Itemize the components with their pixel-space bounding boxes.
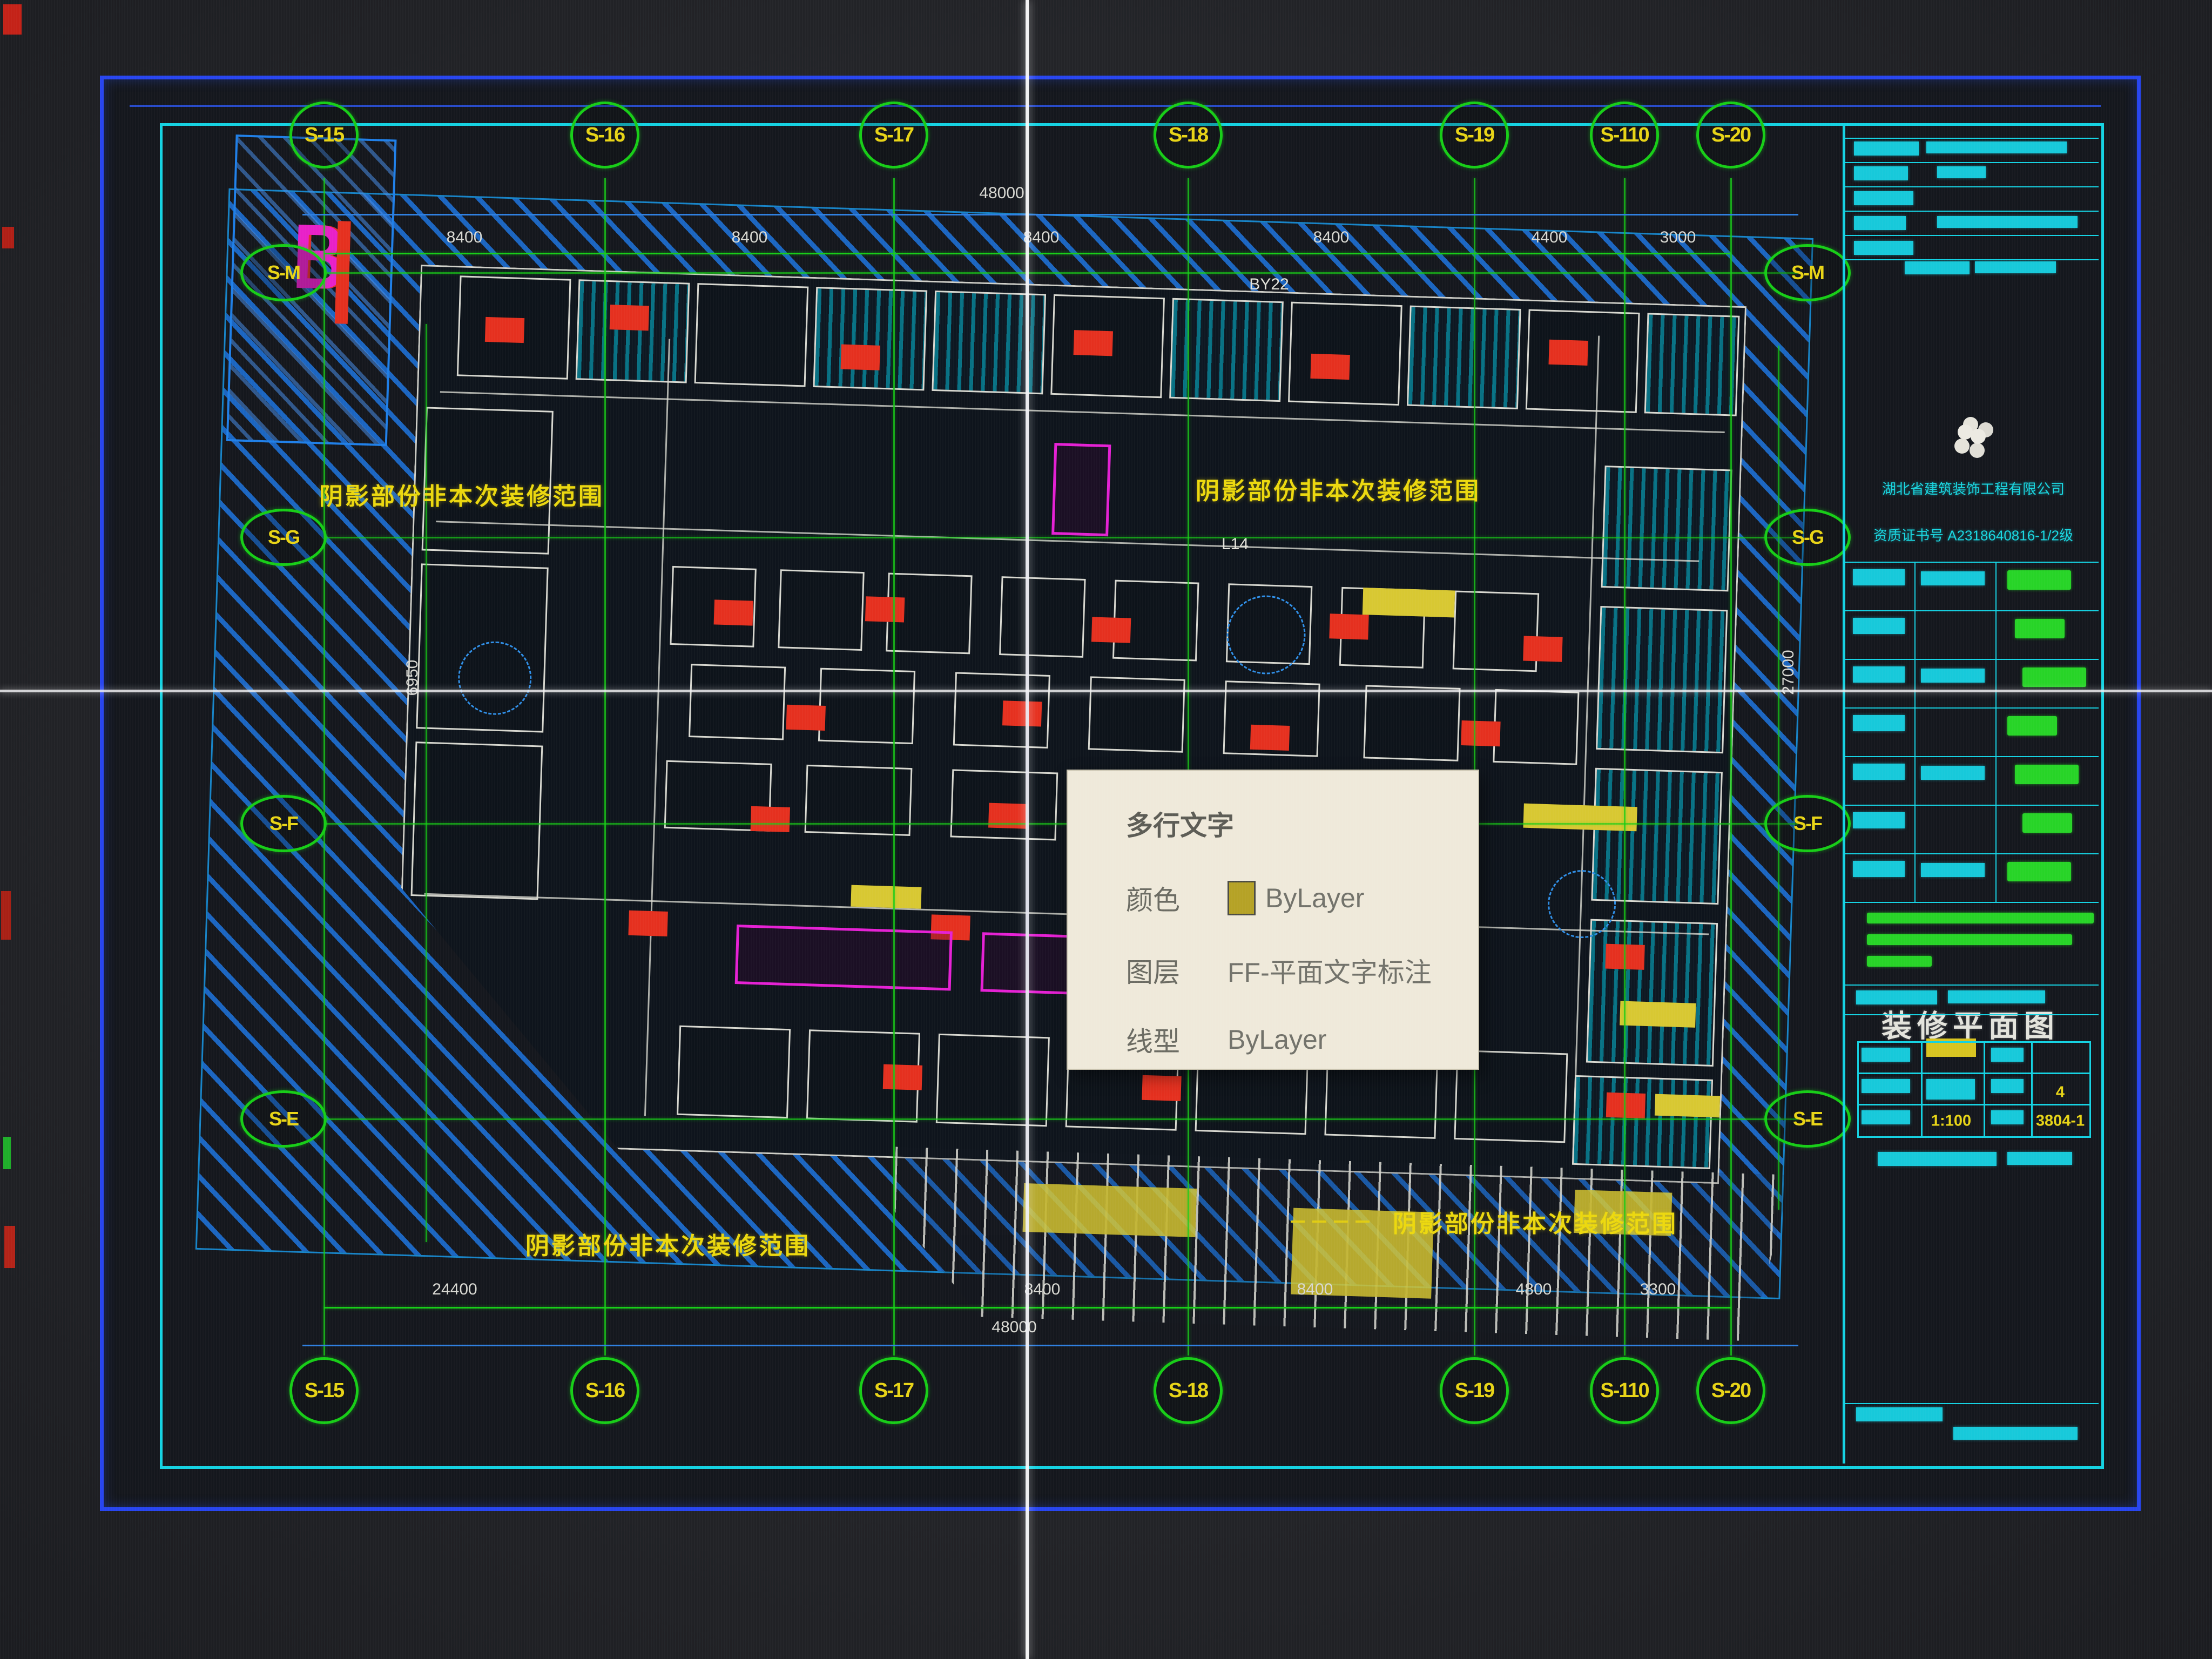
- axis-bubble-top[interactable]: S-15: [289, 102, 359, 168]
- green-note-line: [1867, 913, 2094, 923]
- title-block-rule: [1845, 162, 2099, 163]
- tooltip-linetype-value: ByLayer: [1228, 1024, 1326, 1055]
- tooltip-entity-type: 多行文字: [1126, 804, 1234, 843]
- edge-artifact: [3, 4, 22, 35]
- dim-text-bottom-segment: 24400: [432, 1280, 477, 1299]
- mini-grid-rule: [1857, 1041, 1859, 1138]
- dim-text-top-segment: 8400: [447, 228, 483, 247]
- axis-bubble-bottom[interactable]: S-20: [1696, 1357, 1765, 1424]
- dim-text-bottom-total: 48000: [992, 1318, 1036, 1337]
- revision-row-text: [1854, 241, 1913, 255]
- company-name: 湖北省建筑装饰工程有限公司: [1882, 478, 2065, 498]
- videowall-seam-vertical: [1026, 0, 1029, 1659]
- revision-row-text: [1937, 166, 1986, 178]
- table-label: [1853, 764, 1905, 780]
- title-block-text: [1878, 1152, 1997, 1166]
- dim-line-left-vertical: [426, 324, 427, 1242]
- color-swatch-icon: [1228, 881, 1256, 915]
- signature-name: [2007, 716, 2057, 736]
- axis-line-vertical: [323, 178, 325, 1355]
- title-block-text: [2007, 1152, 2072, 1165]
- table-label: [1921, 571, 1985, 585]
- shade-note-top-left: 阴影部份非本次装修范围: [319, 477, 604, 511]
- axis-line-vertical: [893, 178, 895, 1355]
- axis-line-vertical: [1474, 178, 1475, 1355]
- mini-grid-label: [1862, 1079, 1910, 1093]
- title-block-rule: [1845, 186, 2099, 187]
- tooltip-layer-label: 图层: [1126, 951, 1228, 990]
- axis-bubble-left[interactable]: S-G: [240, 509, 327, 566]
- shade-note-bottom-right: 阴影部份非本次装修范围: [1393, 1204, 1678, 1239]
- table-label: [1853, 861, 1905, 877]
- dim-text-top-total: 48000: [979, 184, 1024, 203]
- table-label: [1853, 715, 1905, 731]
- tooltip-layer-value: FF-平面文字标注: [1228, 951, 1432, 990]
- signature-name: [2007, 570, 2071, 590]
- dim-text-bottom-segment: 3300: [1640, 1280, 1676, 1299]
- title-block-rule: [1845, 902, 2099, 903]
- axis-bubble-right[interactable]: S-E: [1764, 1090, 1851, 1148]
- revision-row-text: [1937, 216, 2078, 228]
- edge-artifact: [3, 1137, 11, 1169]
- dim-text-top-segment: 8400: [732, 228, 768, 247]
- mini-grid-rule: [1857, 1104, 2089, 1105]
- axis-bubble-top[interactable]: S-20: [1696, 102, 1765, 168]
- cad-viewport[interactable]: B S-15S-15S-16S-16S-17S-17S-18S-18S-19S-…: [0, 0, 2212, 1659]
- edge-artifact: [2, 227, 14, 248]
- title-block-rule: [1845, 562, 2099, 563]
- axis-bubble-bottom[interactable]: S-15: [289, 1357, 359, 1424]
- title-block-text: [1856, 1407, 1943, 1421]
- dim-text-bottom-segment: 8400: [1297, 1280, 1333, 1299]
- title-block-rule: [1845, 235, 2099, 236]
- mini-grid-label: [1926, 1079, 1975, 1100]
- axis-bubble-top[interactable]: S-19: [1440, 102, 1509, 168]
- axis-bubble-right[interactable]: S-F: [1764, 795, 1851, 852]
- title-block-rule: [1845, 853, 2099, 854]
- axis-bubble-bottom[interactable]: S-16: [570, 1357, 639, 1424]
- axis-bubble-top[interactable]: S-18: [1154, 102, 1223, 168]
- mini-grid-label: [1862, 1110, 1910, 1124]
- axis-bubble-bottom[interactable]: S-19: [1440, 1357, 1509, 1424]
- title-block-rule: [1845, 1403, 2099, 1404]
- title-block-rule: [1845, 805, 2099, 806]
- videowall-seam-horizontal: [0, 690, 2212, 692]
- axis-line-horizontal: [324, 537, 1798, 538]
- sheet-number: 4: [2056, 1084, 2065, 1102]
- axis-line-vertical: [1624, 178, 1626, 1355]
- title-block-rule: [1845, 1014, 2099, 1015]
- axis-bubble-top[interactable]: S-110: [1590, 102, 1659, 168]
- room-label-l14: L14: [1222, 535, 1249, 554]
- mini-grid-label: [1991, 1048, 2024, 1062]
- revision-row-text: [1854, 141, 1919, 156]
- revision-row-text: [1975, 261, 2056, 273]
- mini-grid-label: [1991, 1110, 2024, 1124]
- dim-text-bottom-segment: 4800: [1516, 1280, 1552, 1299]
- mini-grid-rule: [1984, 1041, 1985, 1138]
- axis-bubble-right[interactable]: S-M: [1764, 244, 1851, 301]
- mini-grid-label: [1991, 1079, 2024, 1093]
- revision-row-text: [1854, 216, 1906, 230]
- title-block: 湖北省建筑装饰工程有限公司 资质证书号 A2318640816-1/2级 装修平…: [1843, 123, 2101, 1464]
- mini-grid-label: [1862, 1048, 1910, 1062]
- axis-bubble-top[interactable]: S-16: [570, 102, 639, 168]
- mini-grid-rule: [1857, 1136, 2089, 1138]
- dim-text-top-segment: 3000: [1660, 228, 1696, 247]
- object-properties-tooltip: 多行文字 颜色 ByLayer 图层 FF-平面文字标注 线型 ByLayer: [1067, 770, 1479, 1070]
- table-label: [1853, 618, 1905, 634]
- axis-bubble-bottom[interactable]: S-17: [859, 1357, 928, 1424]
- title-block-rule: [1845, 659, 2099, 660]
- mini-grid-rule: [1857, 1041, 2089, 1043]
- tooltip-color-value: ByLayer: [1265, 882, 1364, 914]
- axis-bubble-left[interactable]: S-M: [240, 244, 327, 301]
- dim-line-bottom-total: [302, 1345, 1798, 1346]
- title-block-rule: [1995, 562, 1997, 903]
- green-note-line: [1867, 934, 2072, 945]
- title-block-text: [1856, 990, 1937, 1004]
- mini-grid-rule: [2031, 1041, 2033, 1138]
- revision-row-text: [1905, 261, 1970, 274]
- axis-bubble-bottom[interactable]: S-110: [1590, 1357, 1659, 1424]
- company-logo-icon: [1958, 424, 1973, 440]
- axis-line-vertical: [1730, 178, 1732, 1355]
- revision-row-text: [1854, 191, 1913, 205]
- title-block-text: [1953, 1427, 2078, 1440]
- axis-line-vertical: [604, 178, 606, 1355]
- mini-grid-rule: [1857, 1073, 2089, 1074]
- dim-text-top-segment: 8400: [1313, 228, 1350, 247]
- table-label: [1853, 569, 1905, 585]
- table-label: [1921, 669, 1985, 683]
- axis-bubble-top[interactable]: S-17: [859, 102, 928, 168]
- dim-text-right-height: 27000: [1779, 650, 1798, 694]
- revision-row-text: [1926, 141, 2067, 153]
- dim-text-top-segment: 4400: [1532, 228, 1568, 247]
- dim-line-right-vertical: [1778, 346, 1779, 1210]
- axis-line-vertical: [1188, 178, 1189, 1355]
- signature-name: [2007, 862, 2071, 881]
- title-block-rule: [1845, 259, 2099, 260]
- table-label: [1921, 863, 1985, 877]
- mini-grid-rule: [1921, 1041, 1923, 1138]
- table-label: [1853, 812, 1905, 828]
- title-block-rule: [1845, 138, 2099, 139]
- table-label: [1921, 766, 1985, 780]
- title-block-rule: [1845, 211, 2099, 212]
- signature-name: [2022, 813, 2072, 833]
- axis-bubble-left[interactable]: S-F: [240, 795, 327, 852]
- edge-artifact: [1, 891, 11, 940]
- company-certificate: 资质证书号 A2318640816-1/2级: [1873, 525, 2073, 545]
- revision-row-text: [1854, 166, 1908, 180]
- drawing-scale: 1:100: [1931, 1112, 1971, 1130]
- drawing-number: 3804-1: [2036, 1112, 2085, 1130]
- shade-note-top-right: 阴影部份非本次装修范围: [1196, 471, 1481, 506]
- axis-bubble-right[interactable]: S-G: [1764, 509, 1851, 566]
- edge-artifact: [4, 1226, 15, 1268]
- mini-grid-rule: [2089, 1041, 2091, 1138]
- tooltip-color-label: 颜色: [1126, 879, 1228, 918]
- dim-line-top-total: [302, 214, 1798, 215]
- table-label: [1853, 666, 1905, 683]
- axis-line-horizontal: [324, 1118, 1798, 1120]
- signature-name: [2022, 667, 2086, 687]
- signature-name: [2015, 765, 2079, 784]
- signature-name: [2015, 619, 2065, 638]
- title-block-rule: [1845, 610, 2099, 611]
- room-label-by22: BY22: [1249, 275, 1289, 294]
- shade-note-bottom-left: 阴影部份非本次装修范围: [525, 1226, 811, 1261]
- title-block-rule: [1845, 707, 2099, 709]
- tooltip-linetype-label: 线型: [1126, 1020, 1228, 1059]
- green-note-line: [1867, 956, 1932, 967]
- dim-text-bottom-segment: 8400: [1024, 1280, 1061, 1299]
- axis-bubble-left[interactable]: S-E: [240, 1090, 327, 1148]
- title-block-text: [1948, 990, 2045, 1003]
- title-block-rule: [1914, 562, 1916, 903]
- axis-line-horizontal: [324, 823, 1798, 825]
- axis-bubble-bottom[interactable]: S-18: [1154, 1357, 1223, 1424]
- title-block-rule: [1845, 984, 2099, 986]
- title-block-rule: [1845, 756, 2099, 757]
- note-leader-line: [1291, 1220, 1372, 1223]
- axis-line-horizontal: [324, 272, 1798, 274]
